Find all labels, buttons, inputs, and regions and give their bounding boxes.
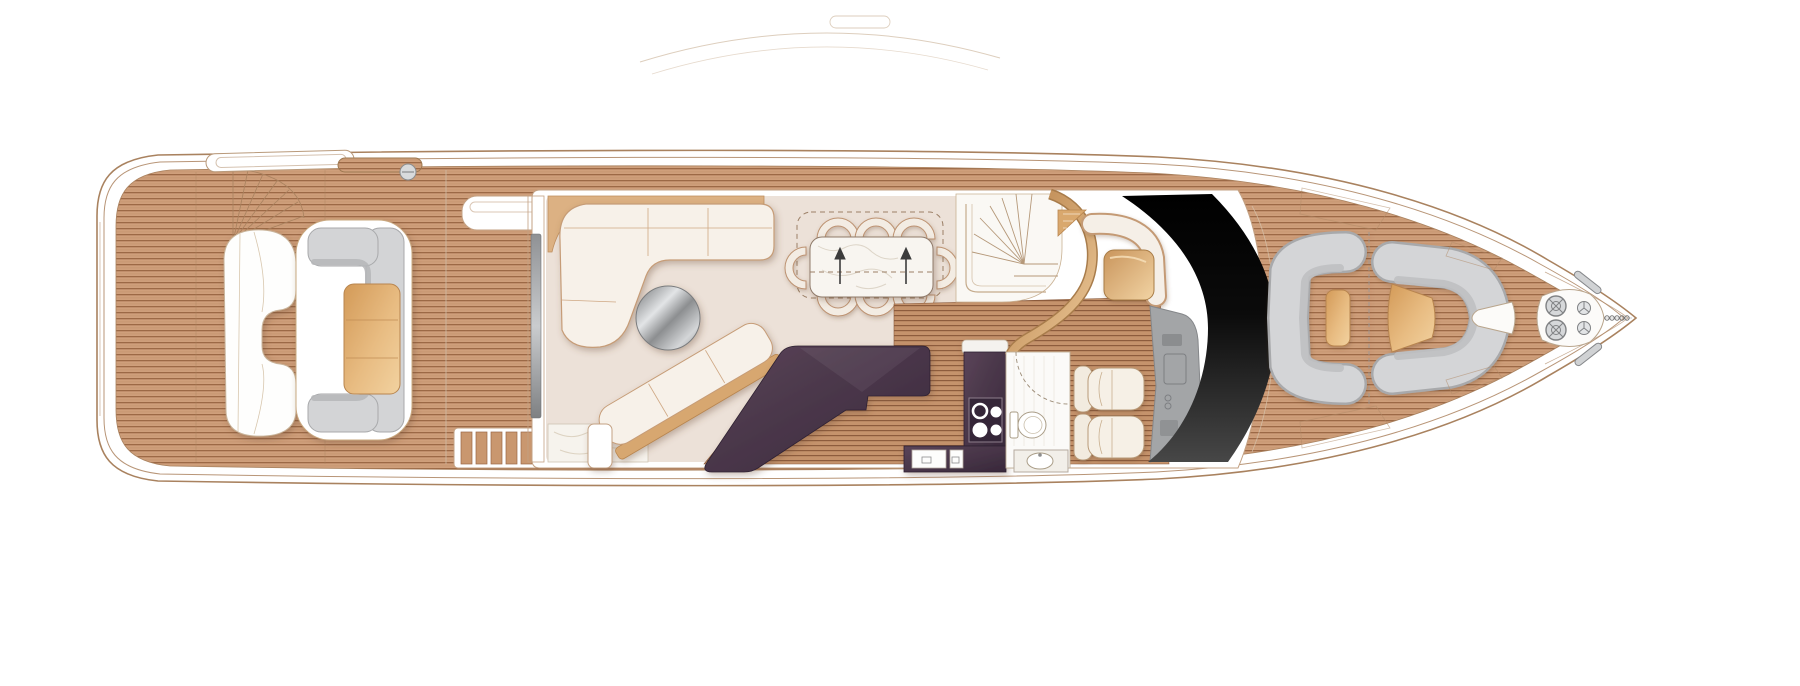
anchor-chain [1604,316,1632,320]
cooktop [969,398,1002,442]
yacht-deck-plan-image [0,0,1800,686]
windlass-drum [1546,296,1566,316]
cockpit-steps [454,428,540,468]
helm-seat [1074,414,1144,460]
hardtop-outline-lines [640,16,1000,74]
aft-sofa [296,220,412,440]
windlass-drum [1546,320,1566,340]
capstan-wheel [1578,322,1591,335]
capstan-wheel [1578,302,1591,315]
toilet [1010,412,1046,438]
coffee-table [636,286,700,350]
dining-table [810,237,933,297]
sink [1014,450,1068,472]
helm-seat [1074,366,1144,412]
day-head [1006,352,1070,472]
deck-cleat [400,164,416,180]
deck-plan-svg [0,0,1800,686]
